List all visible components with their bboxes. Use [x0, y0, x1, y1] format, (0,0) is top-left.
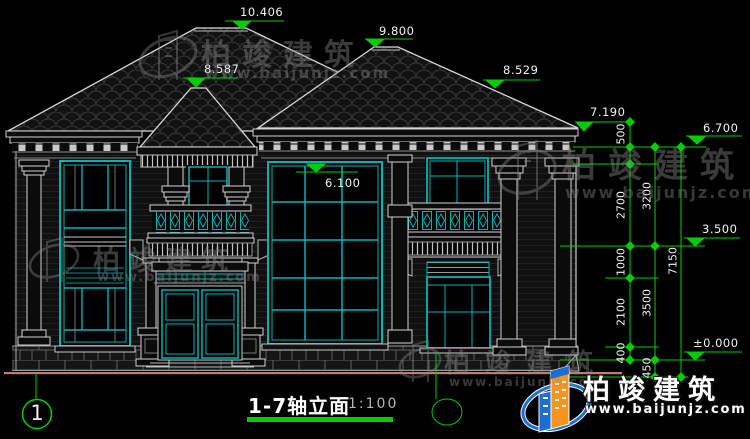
right-1f-window: [420, 262, 497, 353]
cad-elevation-screenshot: 10.406 9.800 8.587 8.529 7.190 6.700 6.1…: [0, 0, 750, 439]
central-window: [262, 162, 388, 350]
level-9800: 9.800: [379, 24, 414, 38]
right-2f-window: [425, 157, 489, 210]
dim-1000: 1000: [615, 248, 628, 276]
right-balcony-slab: [396, 237, 514, 257]
dim-2100: 2100: [615, 298, 628, 326]
dim-7150: 7150: [667, 247, 680, 275]
entrance-door: [158, 286, 242, 360]
drawing-scale: 1:100: [348, 396, 398, 412]
level-6100: 6.100: [325, 176, 360, 190]
porch-cornice: [137, 147, 257, 167]
left-window-sill: [55, 346, 135, 352]
watermark-url: www.baijunjz.com: [205, 64, 390, 82]
level-6700: 6.700: [703, 121, 738, 135]
level-7190: 7.190: [590, 105, 625, 119]
level-10406: 10.406: [240, 5, 283, 19]
level-8529: 8.529: [503, 63, 538, 77]
watermark-url: www.baijunjz.com: [565, 183, 750, 202]
drawing-title: 1-7轴立面: [248, 390, 350, 419]
watermark-url: www.baijunjz.com: [449, 375, 604, 389]
pilaster-mid-left: [388, 155, 412, 343]
porch-balustrade: [148, 205, 253, 238]
axis-label: 1: [23, 401, 51, 425]
logo-url: www.baijunjz.com: [585, 402, 747, 417]
right-balustrade: [396, 203, 512, 237]
dim-3500: 3500: [641, 289, 654, 317]
central-window-sill: [262, 344, 388, 350]
level-0000: ±0.000: [693, 336, 739, 350]
dim-400: 400: [615, 343, 628, 364]
level-3500: 3.500: [702, 222, 737, 236]
watermark-brand: 柏竣建筑: [562, 138, 746, 187]
watermark-url: www.baijunjz.com: [97, 270, 262, 285]
